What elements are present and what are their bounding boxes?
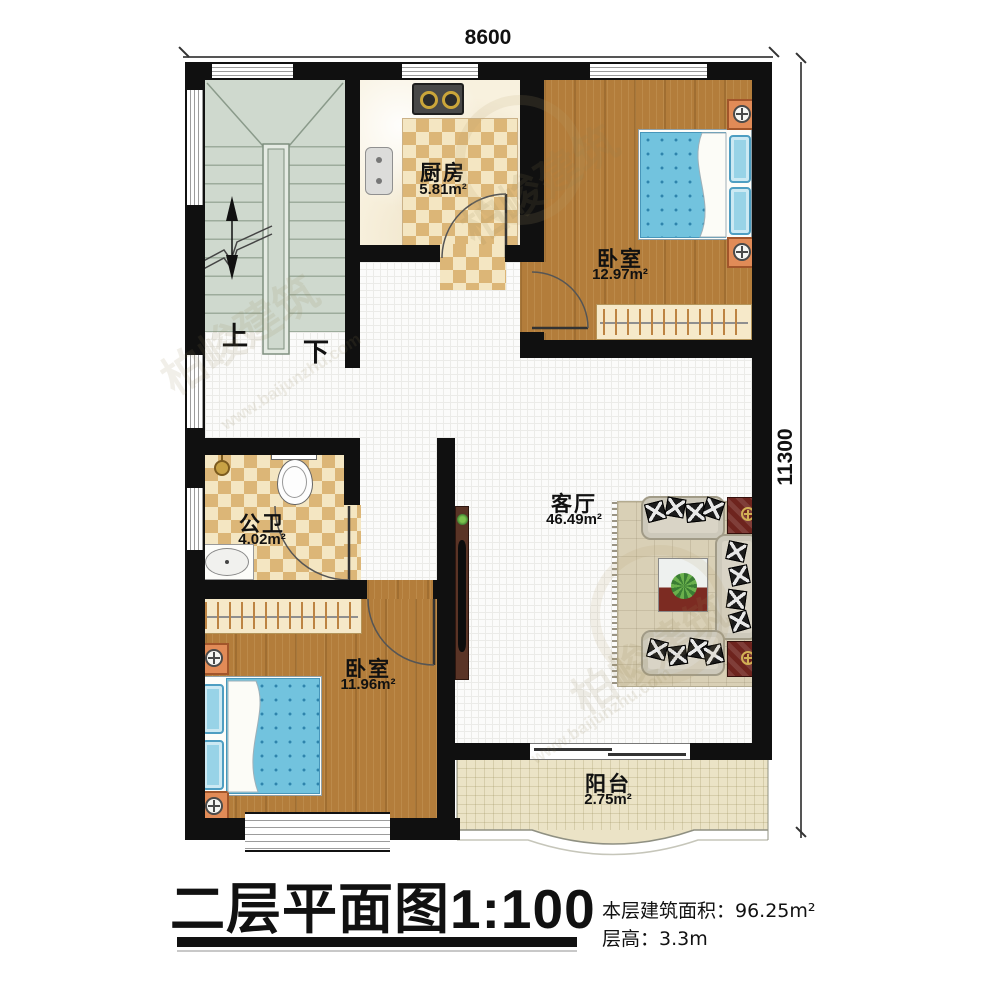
- wall: [185, 428, 205, 488]
- window: [185, 355, 205, 428]
- sliding-door-panel: [608, 753, 686, 756]
- wall: [185, 818, 245, 840]
- title-text: 二层平面图: [170, 878, 450, 940]
- wall: [185, 62, 205, 90]
- footer-height-line: 层高：3.3m: [602, 924, 708, 951]
- floor-plan: 厨房 5.81m² 卧室 12.97m² 公卫 4.02m² 客厅 46.49m…: [0, 0, 1000, 990]
- wall: [520, 340, 772, 358]
- dimension-right-line: [800, 62, 802, 838]
- wall: [505, 245, 520, 262]
- wall: [185, 438, 360, 455]
- room-area-balcony: 2.75m²: [584, 791, 632, 808]
- title-underline: [177, 937, 577, 947]
- wall: [437, 438, 455, 840]
- title-underline-thin: [177, 950, 577, 952]
- wall: [520, 62, 544, 262]
- wall: [185, 205, 205, 355]
- room-area-bedroom1: 12.97m²: [592, 266, 648, 283]
- wall: [390, 818, 460, 840]
- window: [402, 62, 478, 80]
- footer-area-line: 本层建筑面积：96.25m²: [602, 896, 816, 923]
- stairs-down-label: 下: [303, 332, 329, 369]
- plan-linework: [0, 0, 1000, 990]
- wall: [345, 62, 360, 368]
- room-area-kitchen: 5.81m²: [419, 181, 467, 198]
- room-area-bedroom2: 11.96m²: [340, 676, 395, 693]
- sliding-door: [530, 743, 690, 760]
- title-scale: 1:100: [450, 878, 596, 940]
- room-area-living: 46.49m²: [546, 511, 602, 528]
- wall: [752, 62, 772, 758]
- dimension-right-label: 11300: [774, 427, 798, 487]
- window: [245, 812, 390, 852]
- wall: [690, 743, 772, 760]
- wall: [345, 245, 440, 262]
- room-area-bathroom: 4.02m²: [238, 531, 286, 548]
- wall: [455, 743, 530, 760]
- window: [185, 90, 205, 205]
- sliding-door-panel: [534, 748, 612, 751]
- window: [212, 62, 293, 80]
- page-title: 二层平面图1:100: [170, 864, 596, 944]
- wall: [185, 580, 367, 599]
- window: [590, 62, 707, 80]
- stairs-up-label: 上: [222, 316, 248, 353]
- wall: [344, 438, 360, 505]
- dimension-top-line: [183, 56, 773, 58]
- window: [185, 488, 205, 550]
- dimension-top-label: 8600: [438, 26, 538, 50]
